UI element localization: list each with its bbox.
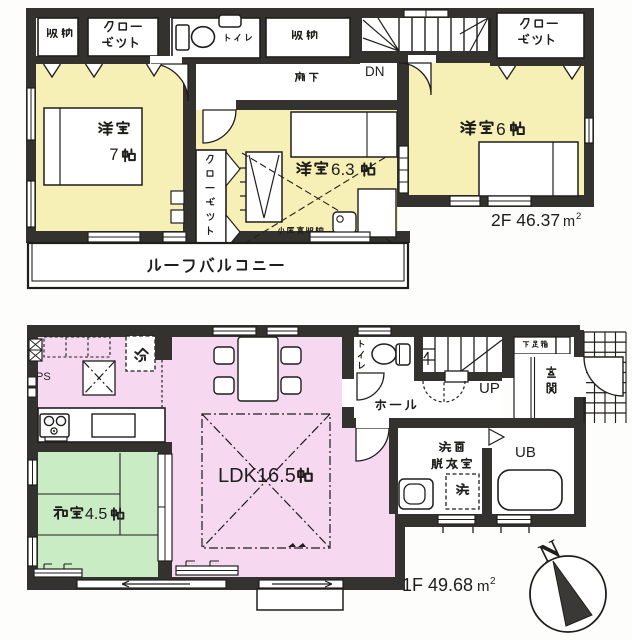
svg-text:DN: DN xyxy=(365,64,385,79)
svg-text:4.5: 4.5 xyxy=(85,506,107,523)
svg-text:2F 46.37: 2F 46.37 xyxy=(491,210,560,230)
svg-text:2: 2 xyxy=(490,576,496,587)
svg-text:m: m xyxy=(477,578,490,595)
svg-text:UP: UP xyxy=(479,380,500,397)
svg-text:7: 7 xyxy=(109,146,118,164)
svg-text:6.3: 6.3 xyxy=(331,160,355,179)
svg-text:1F 49.68: 1F 49.68 xyxy=(402,575,473,595)
svg-text:LDK16.5: LDK16.5 xyxy=(218,465,296,487)
svg-text:PS: PS xyxy=(36,371,51,383)
svg-text:UB: UB xyxy=(515,444,536,461)
svg-text:m: m xyxy=(563,214,575,230)
svg-text:2: 2 xyxy=(576,211,581,222)
svg-text:6: 6 xyxy=(496,119,506,139)
